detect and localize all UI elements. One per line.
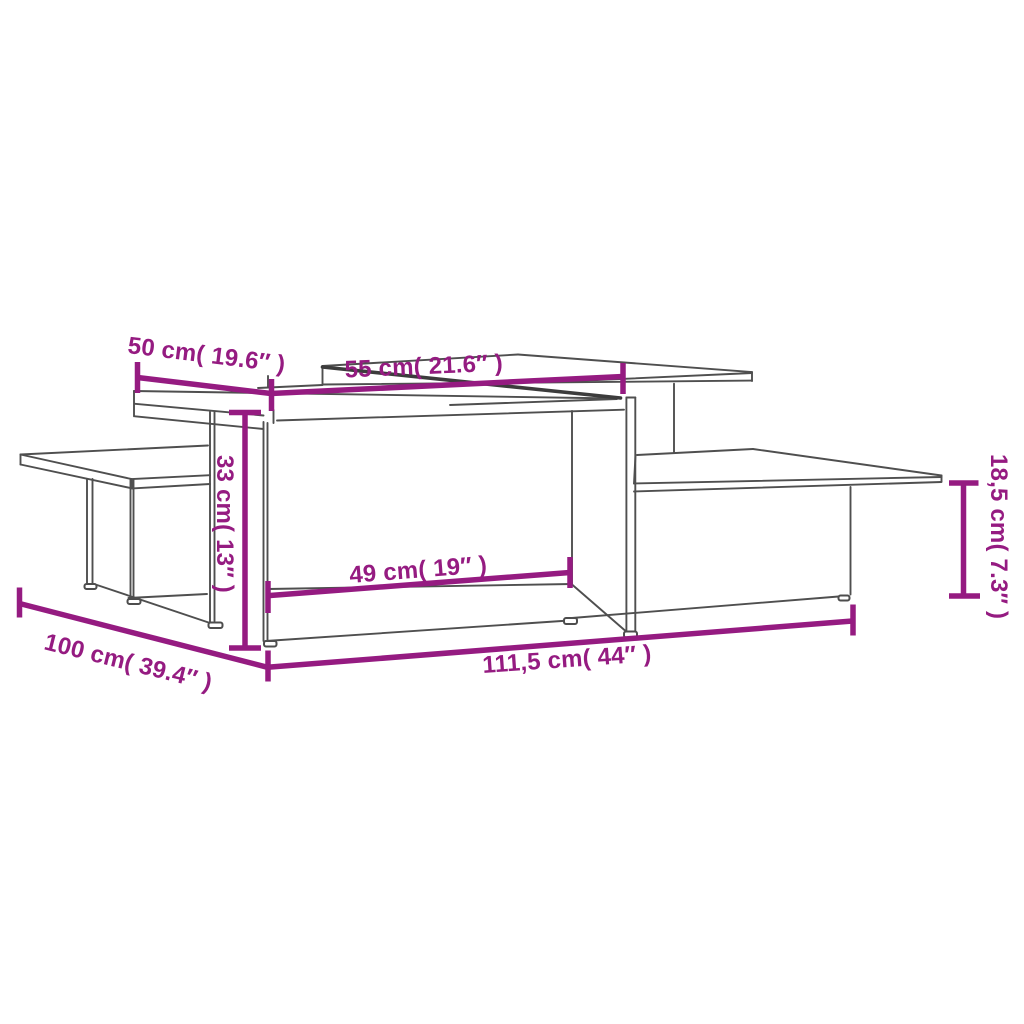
svg-text:18,5 cm( 7.3″ ): 18,5 cm( 7.3″ ) (985, 454, 1012, 619)
svg-text:33 cm( 13″ ): 33 cm( 13″ ) (211, 455, 238, 593)
